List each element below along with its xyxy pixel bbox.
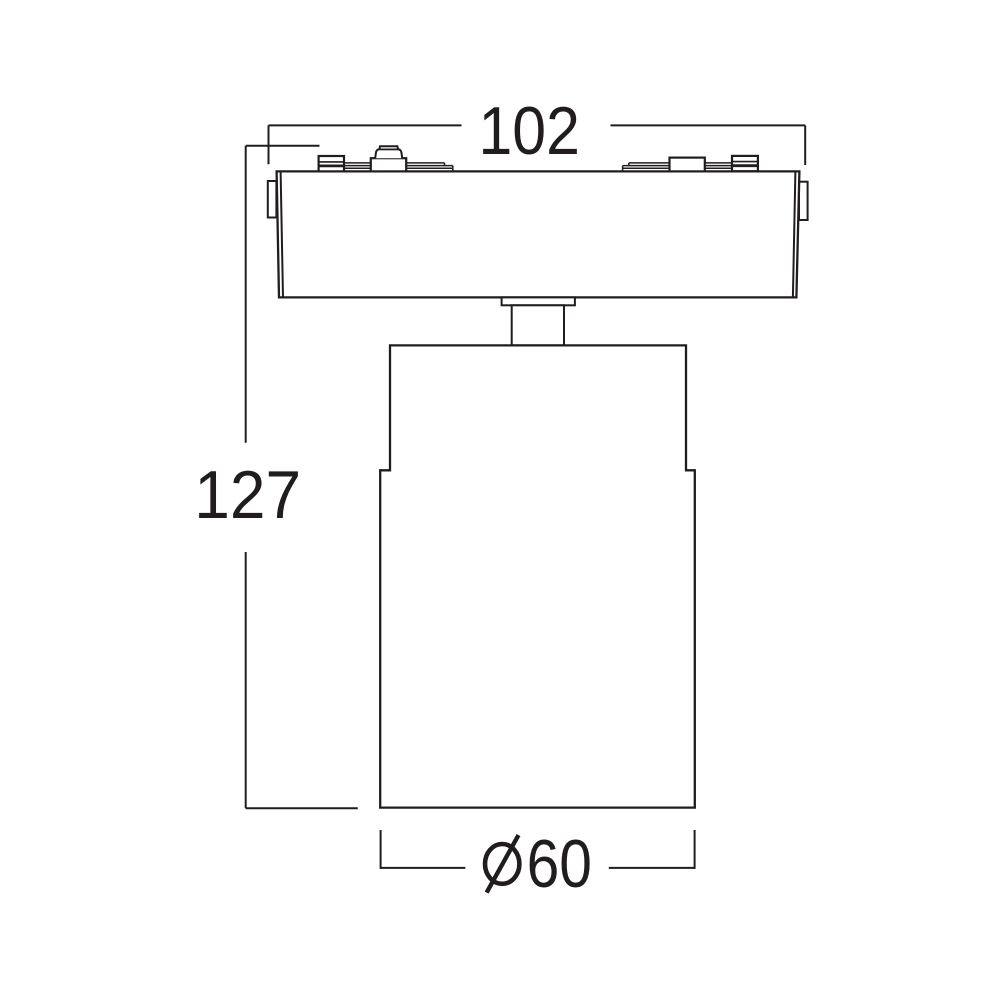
svg-text:102: 102 <box>479 93 580 169</box>
svg-text:60: 60 <box>527 826 592 902</box>
svg-text:127: 127 <box>194 457 301 533</box>
